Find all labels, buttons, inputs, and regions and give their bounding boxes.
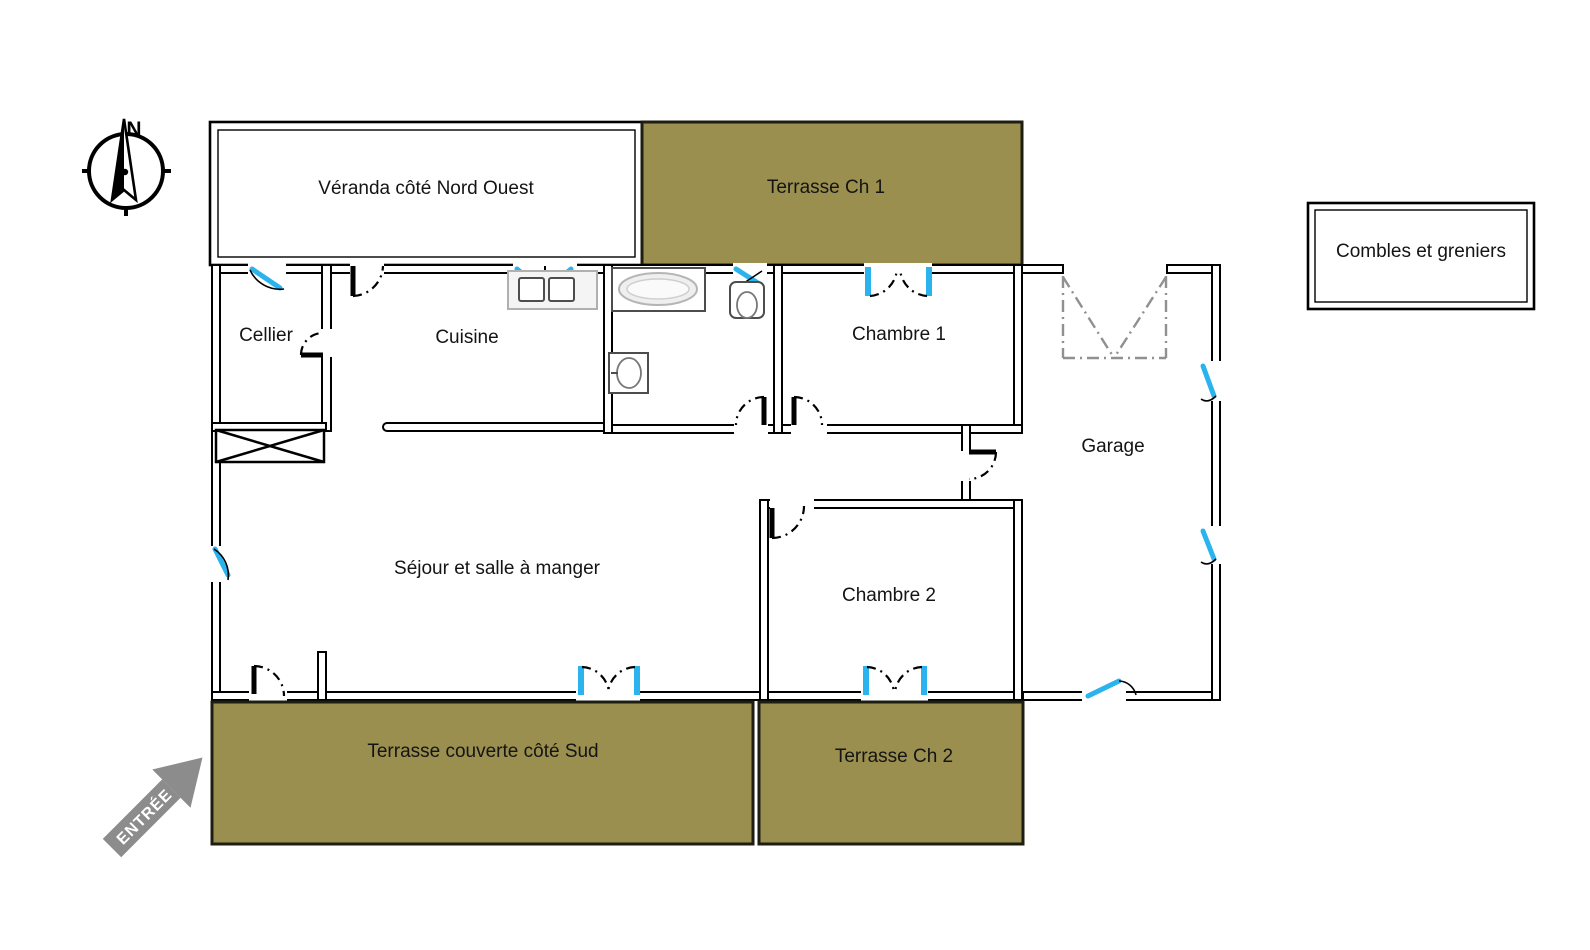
door-chambre1 [794, 397, 822, 425]
terrasse-sud-area [212, 702, 753, 844]
room-label-combles: Combles et greniers [1336, 241, 1506, 262]
room-label-chambre2: Chambre 2 [842, 585, 936, 606]
terrasse-ch2-area [759, 702, 1023, 844]
walls-group [212, 265, 1220, 700]
room-terrasse-ch1: Terrasse Ch 1 [642, 122, 1022, 265]
room-label-terrasse-ch1: Terrasse Ch 1 [767, 177, 885, 198]
entrance-label: ENTRÉE [112, 785, 176, 849]
chimney-block [216, 430, 324, 462]
room-label-veranda: Véranda côté Nord Ouest [318, 178, 534, 199]
toilet [730, 282, 764, 318]
room-veranda: Véranda côté Nord Ouest [210, 122, 643, 265]
bathroom-sink [609, 353, 648, 393]
room-terrasse-sud: Terrasse couverte côté Sud [212, 702, 753, 844]
door-cellier [301, 333, 323, 355]
kitchen-sink [508, 271, 597, 309]
room-combles: Combles et greniers [1308, 203, 1534, 309]
windows-group [214, 266, 1216, 696]
floor-plan: N Véranda côté Nord Ouest Terrasse Ch 1 … [0, 0, 1590, 950]
compass-icon: N [82, 118, 171, 216]
bathtub [612, 268, 705, 311]
room-label-cuisine: Cuisine [435, 327, 498, 348]
compass-north-label: N [126, 118, 141, 141]
room-label-sejour: Séjour et salle à manger [394, 558, 601, 579]
room-label-garage: Garage [1081, 436, 1144, 457]
garage-door-swing [1063, 276, 1166, 358]
entrance-arrow-icon: ENTRÉE [93, 738, 222, 867]
room-label-terrasse-ch2: Terrasse Ch 2 [835, 746, 953, 767]
door-couloir-garage [969, 452, 996, 479]
wall-openings [210, 263, 1222, 702]
room-label-chambre1: Chambre 1 [852, 324, 946, 345]
room-label-cellier: Cellier [239, 325, 294, 346]
room-terrasse-ch2: Terrasse Ch 2 [759, 702, 1023, 844]
door-chambre2 [772, 506, 804, 538]
door-salle-de-bain [736, 397, 764, 425]
room-label-terrasse-sud: Terrasse couverte côté Sud [367, 741, 598, 762]
